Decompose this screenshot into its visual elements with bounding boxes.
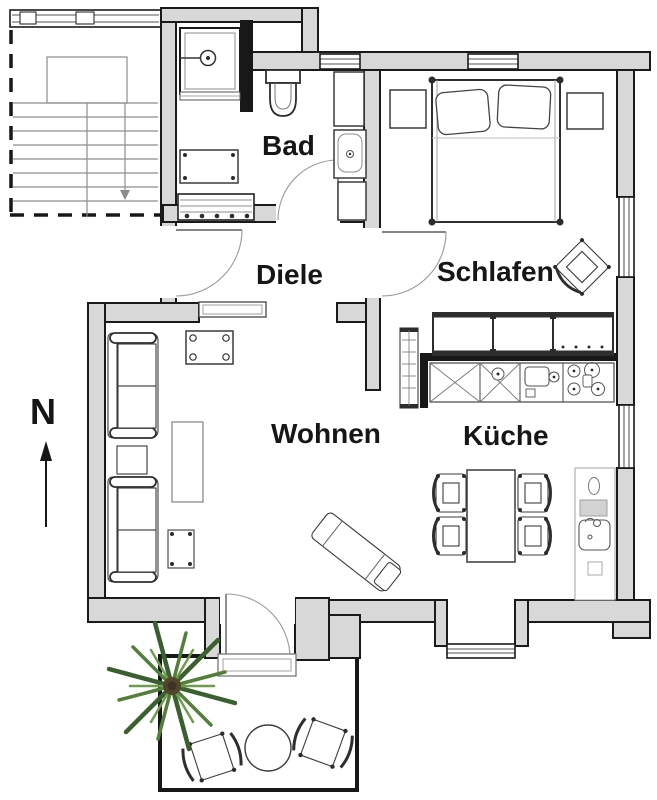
shower-partition-wall xyxy=(240,20,253,112)
tv-bench-icon xyxy=(400,328,418,408)
window-icon xyxy=(619,405,634,468)
shower-icon xyxy=(180,28,240,100)
room-label-kueche: Küche xyxy=(463,420,549,451)
stool-icon xyxy=(168,530,194,568)
kitchenette-icon xyxy=(575,468,615,600)
pillow-icon xyxy=(435,89,490,135)
north-label: N xyxy=(30,391,56,432)
pillow-icon xyxy=(497,85,551,130)
washing-machine-icon xyxy=(180,150,238,183)
nightstand-icon xyxy=(390,90,426,128)
doormat-icon xyxy=(199,302,266,317)
room-label-wohnen: Wohnen xyxy=(271,418,381,449)
hall-wardrobe-icon xyxy=(178,194,254,220)
terrace-threshold xyxy=(218,654,296,676)
terrace-table-icon xyxy=(245,725,291,771)
kitchen-wall-stub xyxy=(420,353,428,408)
sofa-icon xyxy=(108,333,158,438)
double-bed-icon xyxy=(429,77,564,226)
nightstand-icon xyxy=(567,93,603,129)
dining-table-icon xyxy=(467,470,515,562)
sofa-icon xyxy=(108,477,158,582)
bath-cabinet-icon xyxy=(338,182,366,220)
side-table-icon xyxy=(117,446,147,474)
dining-chair-icon xyxy=(518,517,551,555)
dining-chair-icon xyxy=(518,474,551,512)
window-icon xyxy=(320,54,360,69)
dining-chair-icon xyxy=(434,517,467,555)
sink-icon xyxy=(579,520,610,550)
room-label-diele: Diele xyxy=(256,259,323,290)
console-table-icon xyxy=(186,331,233,364)
kitchen-counter-icon xyxy=(430,363,614,403)
room-label-schlafen: Schlafen xyxy=(437,256,554,287)
toilet-icon xyxy=(266,70,300,116)
window-icon xyxy=(468,54,518,69)
bath-cabinet-icon xyxy=(334,72,364,126)
coffee-table-icon xyxy=(172,422,203,502)
wardrobe-icon xyxy=(433,313,613,355)
room-label-bad: Bad xyxy=(262,130,315,161)
dining-chair-icon xyxy=(434,474,467,512)
floor-plan-page: Bad Diele Schlafen Wohnen Küche N xyxy=(0,0,657,800)
washbasin-icon xyxy=(334,130,366,178)
floor-plan: Bad Diele Schlafen Wohnen Küche N xyxy=(0,0,657,800)
window-icon xyxy=(447,644,515,658)
window-icon xyxy=(619,197,634,277)
